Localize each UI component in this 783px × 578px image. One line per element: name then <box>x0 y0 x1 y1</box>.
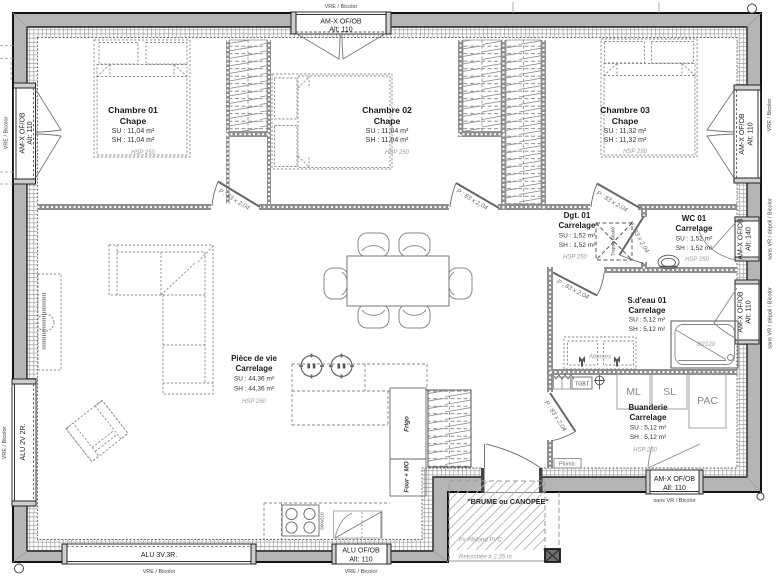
svg-text:Alt: 110: Alt: 110 <box>748 122 755 145</box>
svg-text:HSP 250: HSP 250 <box>242 399 266 405</box>
svg-text:VRE / Bicolor: VRE / Bicolor <box>143 569 176 575</box>
svg-text:SU : 1,52 m²: SU : 1,52 m² <box>676 236 713 243</box>
svg-text:ALU 2V 2R.: ALU 2V 2R. <box>20 423 27 460</box>
svg-text:SU : 11,04 m²: SU : 11,04 m² <box>112 128 155 135</box>
svg-text:Alt: 110: Alt: 110 <box>746 300 753 323</box>
svg-text:P : 83 x 2,04: P : 83 x 2,04 <box>543 400 568 434</box>
svg-text:"BRUME ou CANOPEE": "BRUME ou CANOPEE" <box>467 497 549 506</box>
svg-text:PAC: PAC <box>697 395 718 407</box>
svg-text:AM-X OF/OB: AM-X OF/OB <box>739 113 746 155</box>
svg-text:Alt: 140: Alt: 140 <box>746 227 753 251</box>
svg-text:VRE / Bicolor: VRE / Bicolor <box>345 569 378 575</box>
svg-text:Carrelage: Carrelage <box>629 306 666 315</box>
svg-text:Alt: 110: Alt: 110 <box>349 557 372 564</box>
svg-text:SU : 1,52 m²: SU : 1,52 m² <box>559 233 596 240</box>
svg-text:sans VR / dépoli / Bicolor: sans VR / dépoli / Bicolor <box>768 198 774 260</box>
svg-text:Buanderie: Buanderie <box>628 403 668 412</box>
svg-text:AM-X OF/OB: AM-X OF/OB <box>738 218 745 260</box>
svg-text:SH : 5,12 m²: SH : 5,12 m² <box>630 434 667 441</box>
svg-text:WC 01: WC 01 <box>682 214 707 223</box>
svg-text:S.d'eau 01: S.d'eau 01 <box>627 296 667 305</box>
svg-text:SU : 44,36 m²: SU : 44,36 m² <box>234 376 275 383</box>
svg-text:Chape: Chape <box>374 116 401 126</box>
svg-text:Chambre 02: Chambre 02 <box>362 105 412 115</box>
svg-text:Trappe 60x60: Trappe 60x60 <box>611 226 617 256</box>
svg-text:P : 83 x 2,04: P : 83 x 2,04 <box>595 190 629 214</box>
svg-text:Carrelage: Carrelage <box>236 364 273 373</box>
svg-text:Alt: 110: Alt: 110 <box>27 121 34 144</box>
svg-text:SU : 11,32 m²: SU : 11,32 m² <box>604 128 647 135</box>
svg-text:SH : 44,36 m²: SH : 44,36 m² <box>234 386 275 393</box>
svg-text:VRE / Bicolor: VRE / Bicolor <box>325 4 358 10</box>
svg-text:AM-X OF/OB: AM-X OF/OB <box>320 19 362 26</box>
svg-text:SH : 11,04 m²: SH : 11,04 m² <box>366 137 409 144</box>
svg-text:Chape: Chape <box>612 116 639 126</box>
svg-text:AM-X OF/OB: AM-X OF/OB <box>20 112 27 154</box>
svg-text:80/120: 80/120 <box>697 342 716 348</box>
svg-text:Carrelage: Carrelage <box>676 224 713 233</box>
svg-text:SL: SL <box>663 386 676 398</box>
svg-text:Alt: 110: Alt: 110 <box>329 27 352 34</box>
svg-text:HSP 250: HSP 250 <box>563 255 587 261</box>
svg-text:ALU 3V.3R.: ALU 3V.3R. <box>141 552 177 559</box>
svg-text:All: 110: All: 110 <box>663 485 686 492</box>
svg-text:VRE / Bicolor: VRE / Bicolor <box>767 98 773 131</box>
svg-text:Pièce de vie: Pièce de vie <box>231 354 277 363</box>
svg-text:Chape: Chape <box>120 116 147 126</box>
svg-text:HSP 250: HSP 250 <box>685 257 709 263</box>
svg-text:HSP 250: HSP 250 <box>131 150 155 156</box>
svg-text:Chambre 03: Chambre 03 <box>600 105 650 115</box>
svg-text:Carrelage: Carrelage <box>559 221 596 230</box>
svg-text:AM-X OF/OB: AM-X OF/OB <box>654 476 696 483</box>
svg-text:ALU OF/OB: ALU OF/OB <box>342 548 380 555</box>
svg-text:sans VR / dépoli / Bicolor: sans VR / dépoli / Bicolor <box>768 287 774 349</box>
svg-text:Four + MO: Four + MO <box>404 461 411 492</box>
svg-text:SU : 5,12 m²: SU : 5,12 m² <box>630 425 667 432</box>
svg-text:Attentes: Attentes <box>588 355 611 361</box>
svg-text:Chambre 01: Chambre 01 <box>108 105 158 115</box>
svg-text:SH : 5,12 m²: SH : 5,12 m² <box>629 326 666 333</box>
svg-text:Frigo: Frigo <box>404 416 411 432</box>
svg-text:HSP 250: HSP 250 <box>385 150 409 156</box>
svg-text:SU : 11,04 m²: SU : 11,04 m² <box>366 128 409 135</box>
svg-text:ML: ML <box>626 386 641 398</box>
svg-text:Retombée à 2,35 m: Retombée à 2,35 m <box>459 555 512 561</box>
svg-text:sans VR / Bicolor: sans VR / Bicolor <box>653 498 695 504</box>
svg-text:SH : 11,32 m²: SH : 11,32 m² <box>604 137 647 144</box>
svg-text:TGBT: TGBT <box>575 382 590 388</box>
svg-text:SH : 11,04 m²: SH : 11,04 m² <box>112 137 155 144</box>
svg-text:VRE / Bicolor: VRE / Bicolor <box>4 116 10 149</box>
svg-text:HSP 250: HSP 250 <box>633 448 657 454</box>
svg-text:600x510: 600x510 <box>320 512 325 530</box>
svg-text:Plomb.: Plomb. <box>559 462 577 468</box>
svg-text:VRE / Bicolor: VRE / Bicolor <box>2 426 8 459</box>
svg-text:Dgt. 01: Dgt. 01 <box>564 211 591 220</box>
svg-text:SH : 1,52 m²: SH : 1,52 m² <box>559 242 596 249</box>
svg-text:Carrelage: Carrelage <box>630 413 667 422</box>
svg-text:SH : 1,52 m²: SH : 1,52 m² <box>676 245 713 252</box>
svg-text:Fx Plafond PVC: Fx Plafond PVC <box>459 538 502 544</box>
svg-text:HSP 250: HSP 250 <box>623 149 647 155</box>
svg-text:SU : 5,12 m²: SU : 5,12 m² <box>629 317 666 324</box>
